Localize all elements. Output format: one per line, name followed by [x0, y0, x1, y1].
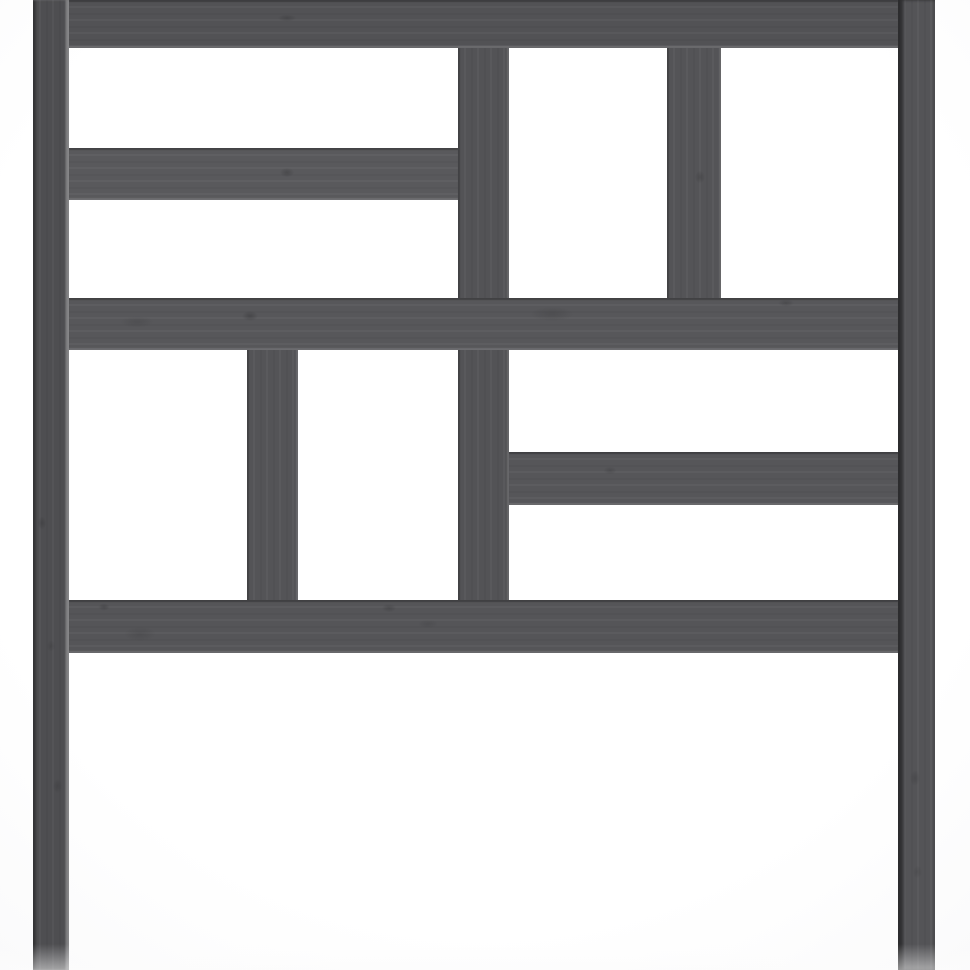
upper-right-divider [667, 40, 721, 302]
lower-center-divider [458, 346, 509, 602]
left-mid-rail [69, 148, 458, 200]
headboard-product-photo [0, 0, 970, 970]
bottom-rail [69, 600, 898, 653]
upper-center-divider [458, 40, 509, 302]
left-leg [33, 0, 69, 970]
top-rail [69, 0, 898, 48]
right-mid-bar [509, 452, 898, 505]
bottom-light-fade [0, 944, 970, 970]
center-rail [69, 298, 898, 350]
right-leg [898, 0, 935, 970]
lower-left-divider [247, 346, 298, 602]
